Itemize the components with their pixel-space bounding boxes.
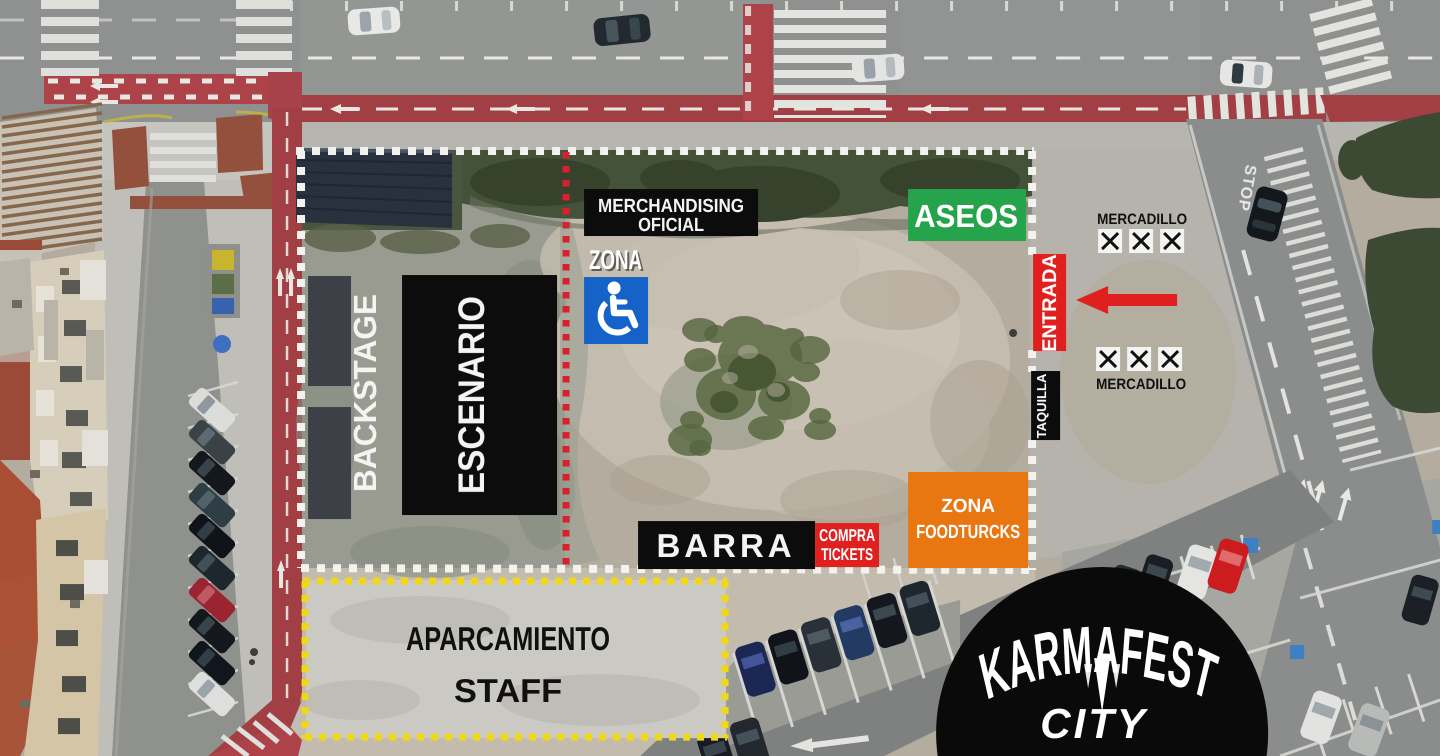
svg-text:STAFF: STAFF [454, 672, 562, 709]
svg-text:ZONA: ZONA [941, 496, 995, 517]
svg-text:MERCHANDISING: MERCHANDISING [598, 196, 744, 217]
svg-text:APARCAMIENTO: APARCAMIENTO [406, 620, 610, 657]
svg-text:CITY: CITY [1040, 700, 1149, 747]
svg-text:ESCENARIO: ESCENARIO [451, 296, 492, 494]
svg-text:COMPRA: COMPRA [819, 526, 875, 545]
svg-text:ASEOS: ASEOS [914, 198, 1018, 234]
svg-text:TICKETS: TICKETS [821, 545, 873, 564]
svg-text:FOODTURCKS: FOODTURCKS [916, 522, 1020, 543]
svg-text:BACKSTAGE: BACKSTAGE [347, 294, 383, 492]
svg-text:BARRA: BARRA [656, 527, 795, 564]
svg-text:MERCADILLO: MERCADILLO [1096, 376, 1186, 393]
svg-text:ZONA: ZONA [589, 245, 642, 275]
svg-text:TAQUILLA: TAQUILLA [1034, 373, 1049, 438]
svg-text:MERCADILLO: MERCADILLO [1097, 211, 1187, 228]
svg-text:ENTRADA: ENTRADA [1039, 254, 1061, 352]
svg-text:OFICIAL: OFICIAL [638, 215, 704, 236]
